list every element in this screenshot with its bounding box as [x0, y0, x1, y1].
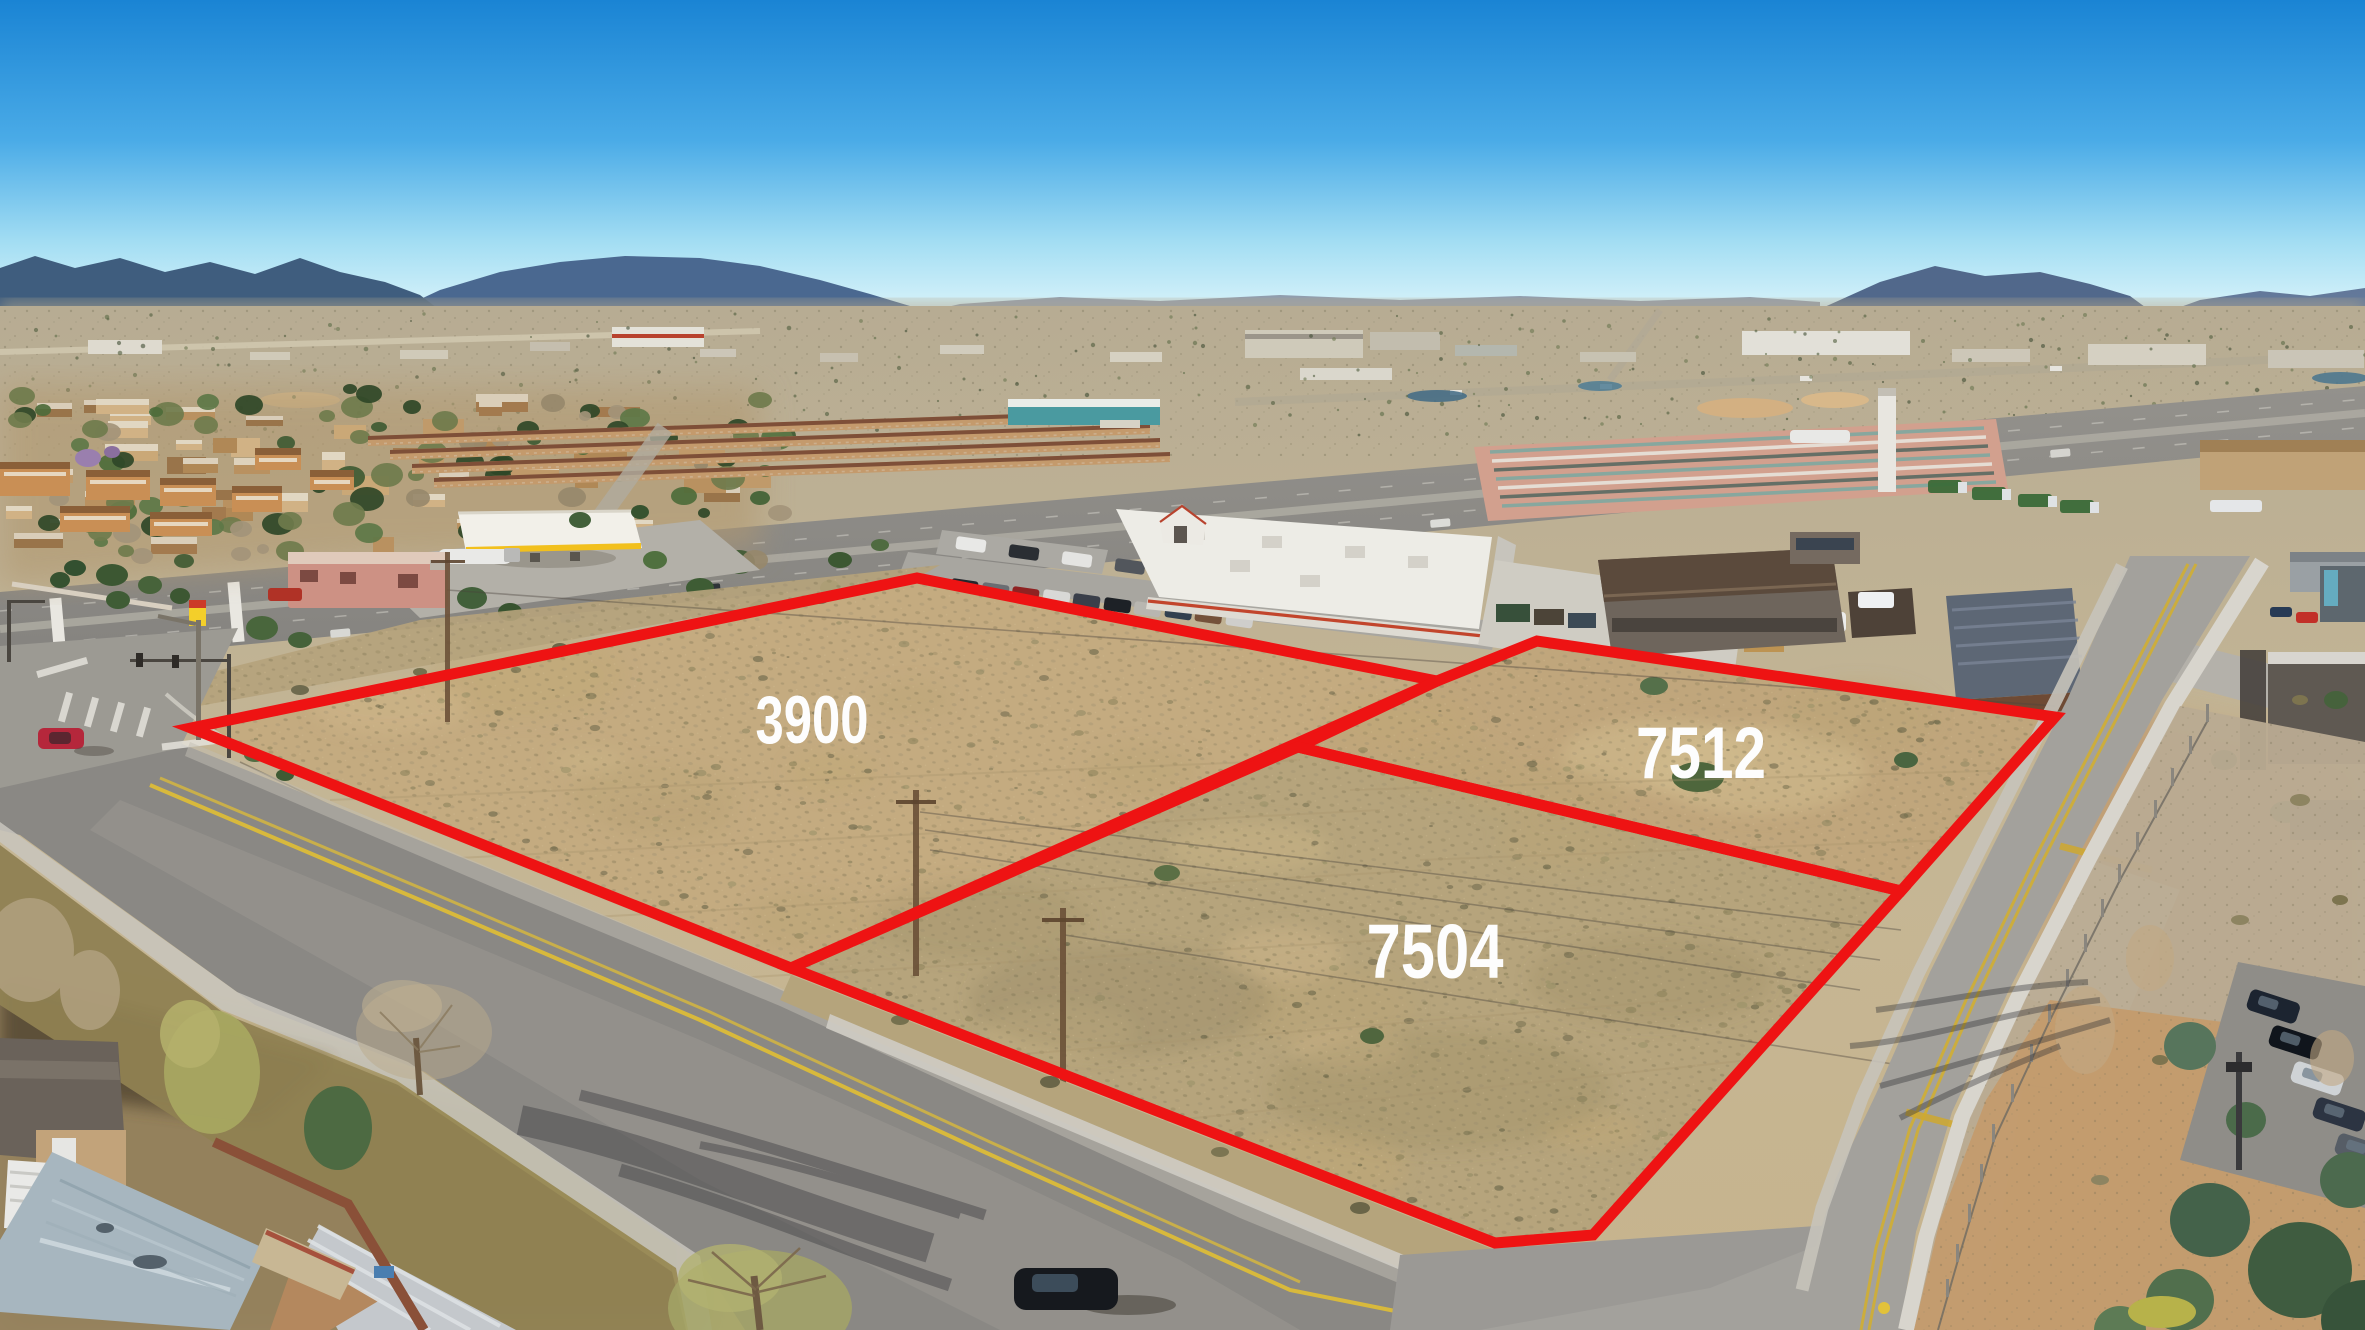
svg-text:7504: 7504 [1367, 909, 1504, 995]
svg-text:3900: 3900 [756, 682, 869, 758]
svg-text:7512: 7512 [1636, 713, 1766, 794]
